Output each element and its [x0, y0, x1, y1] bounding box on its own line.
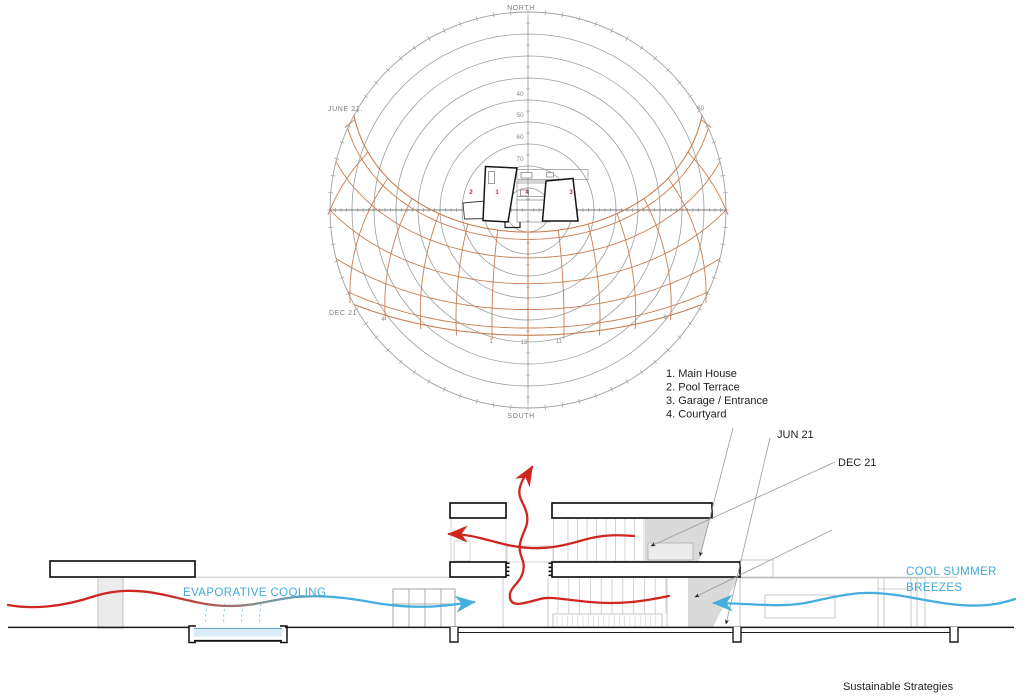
legend-item: 3. Garage / Entrance	[666, 395, 768, 407]
upper-wedge-opening	[648, 543, 693, 560]
jun21-ray	[726, 438, 770, 624]
footing	[450, 627, 458, 642]
plan-detail	[547, 173, 554, 178]
june21-curve-label: JUNE 21.	[328, 106, 363, 113]
north-label: NORTH	[507, 5, 535, 12]
plan-step	[505, 222, 520, 228]
plan-legend: 1. Main House 2. Pool Terrace 3. Garage …	[666, 368, 768, 421]
cool-summer-breezes-label-line2: BREEZES	[906, 582, 962, 594]
legend-item: 4. Courtyard	[666, 409, 727, 421]
upper-bay-outline	[451, 518, 506, 562]
mid-slab-left	[450, 562, 506, 577]
roof-slab-left	[450, 503, 506, 518]
hour-1pm-label: 1	[489, 339, 493, 345]
altitude-40-label: 40	[516, 91, 524, 98]
hour-11am-label: 11	[556, 339, 563, 345]
pool-water	[194, 628, 282, 637]
section-jun21-label: JUN 21	[777, 429, 814, 441]
mid-slab-right	[552, 562, 740, 577]
footing	[950, 627, 958, 642]
sun-path-labels: NORTH SOUTH JUNE 21. DEC 21 60 40 50 60 …	[328, 5, 705, 420]
dec21-curve-label: DEC 21	[329, 310, 357, 317]
roof-slab-right	[552, 503, 712, 518]
plan-detail	[489, 172, 495, 184]
hour-12-label: 12	[521, 340, 528, 346]
ground-glazing	[558, 578, 666, 614]
south-label: SOUTH	[507, 413, 535, 420]
plan-number-2: 2	[469, 190, 473, 196]
legend-item: 2. Pool Terrace	[666, 382, 740, 394]
jun21-ray	[700, 428, 733, 556]
altitude-60-label: 60	[516, 134, 524, 141]
legend-item: 1. Main House	[666, 368, 737, 380]
summer-breeze-flow	[714, 593, 1015, 606]
altitude-70-label: 70	[516, 156, 524, 163]
canopy-column	[98, 577, 123, 628]
sustainable-strategies-sheet: 2 1 4 3 NORTH SOUTH JUNE 21. DEC 21 60 4…	[0, 0, 1024, 700]
garage-outline	[740, 560, 925, 627]
mullion-window	[393, 589, 455, 627]
altitude-50-label: 50	[516, 112, 524, 119]
plan-garage	[543, 179, 579, 222]
pool	[189, 626, 287, 643]
footing	[733, 627, 741, 642]
upper-bay-detail	[454, 541, 470, 561]
sun-path-grid	[328, 10, 729, 411]
azimuth-60-label: 60	[697, 105, 705, 112]
garage-clerestory	[740, 560, 773, 577]
building-plan: 2 1 4 3	[463, 167, 588, 228]
evaporative-cooling-label: EVAPORATIVE COOLING	[183, 587, 326, 599]
plan-main-house	[483, 167, 517, 223]
section-dec21-label: DEC 21	[838, 457, 877, 469]
plan-detail	[521, 173, 532, 179]
hour-4pm-label: 4	[381, 317, 385, 323]
diagram-canvas: 2 1 4 3 NORTH SOUTH JUNE 21. DEC 21 60 4…	[0, 0, 1024, 700]
section-drawing: JUN 21 DEC 21 EVAPORATIVE COOLING COOL S…	[8, 428, 1015, 643]
cool-summer-breezes-label-line1: COOL SUMMER	[906, 566, 997, 578]
left-canopy-roof	[50, 561, 195, 577]
sheet-caption: Sustainable Strategies	[843, 681, 954, 693]
